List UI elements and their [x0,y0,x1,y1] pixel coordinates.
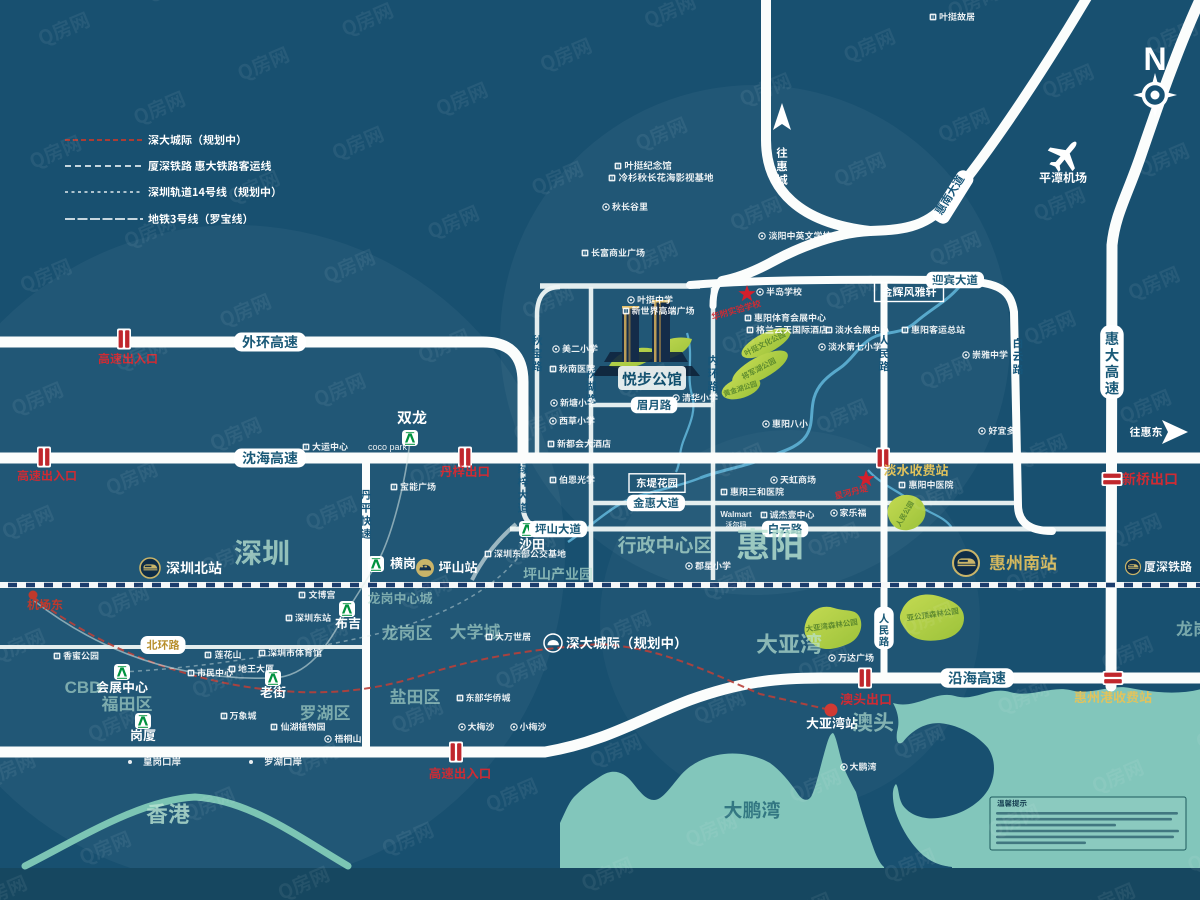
svg-text:CBD: CBD [65,678,102,697]
svg-text:Walmart: Walmart [720,510,752,519]
svg-text:coco park: coco park [368,442,408,452]
svg-text:N: N [1143,41,1166,77]
